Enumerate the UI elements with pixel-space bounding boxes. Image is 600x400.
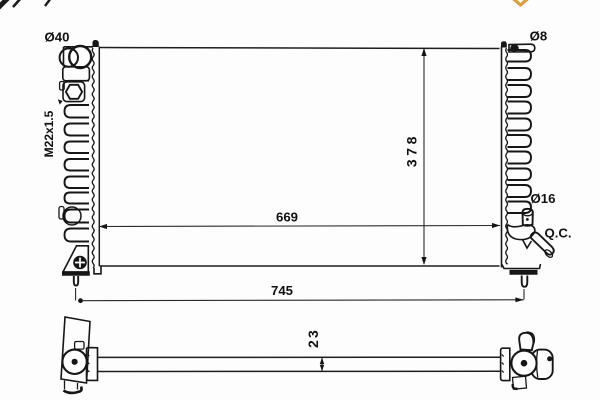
svg-text:745: 745 bbox=[271, 283, 293, 298]
svg-text:Ø40: Ø40 bbox=[45, 29, 70, 44]
svg-text:Ø16: Ø16 bbox=[531, 191, 556, 206]
svg-text:Q.C.: Q.C. bbox=[544, 226, 571, 241]
svg-text:669: 669 bbox=[276, 209, 298, 224]
svg-text:378: 378 bbox=[404, 133, 420, 167]
svg-text:Ø8: Ø8 bbox=[530, 29, 548, 44]
svg-text:23: 23 bbox=[305, 328, 321, 348]
svg-text:M22x1.5: M22x1.5 bbox=[42, 110, 56, 157]
